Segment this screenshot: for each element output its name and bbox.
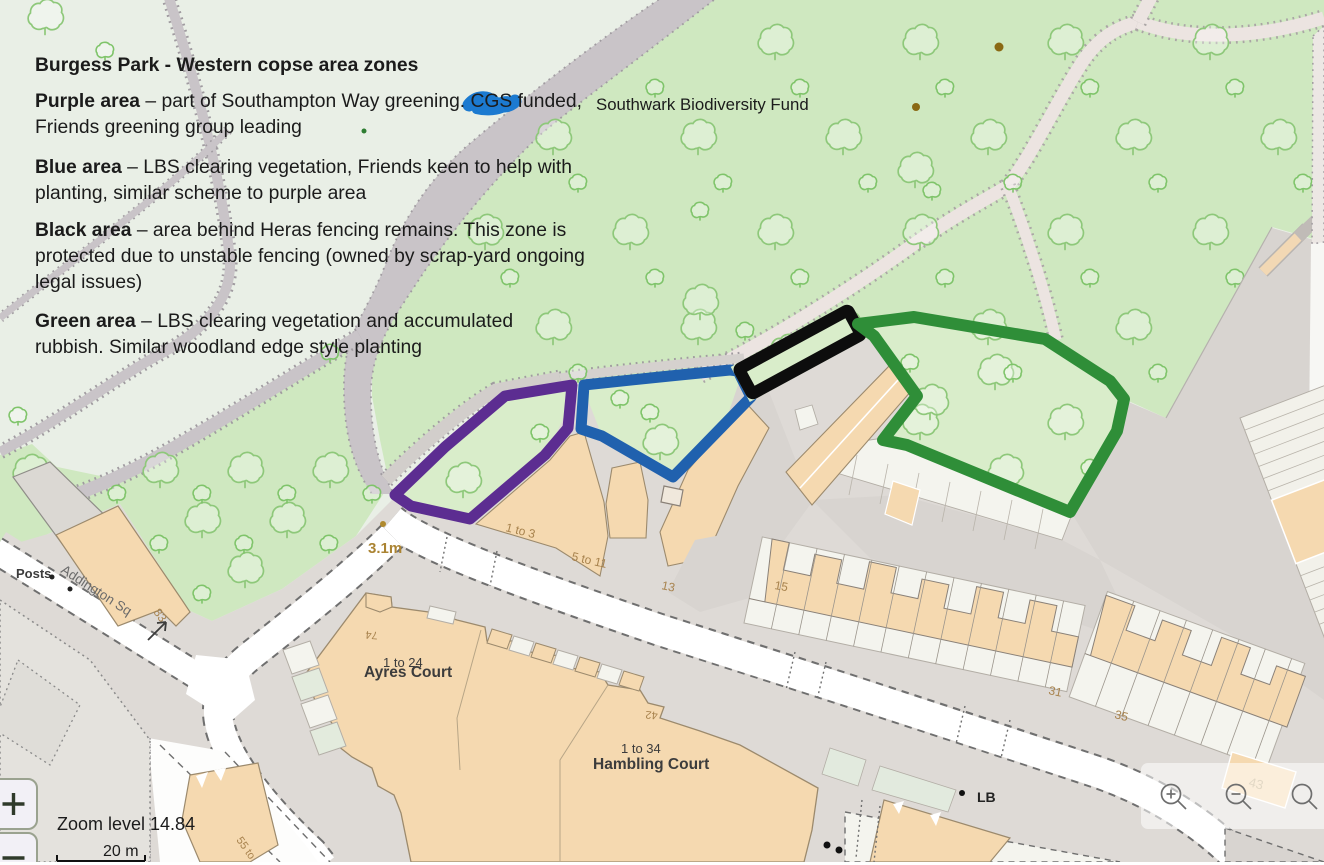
svg-text:74: 74	[365, 628, 378, 641]
svg-text:Ayres Court: Ayres Court	[364, 664, 452, 681]
svg-text:Posts: Posts	[16, 566, 51, 581]
svg-text:LB: LB	[977, 789, 996, 805]
svg-text:42: 42	[645, 708, 658, 721]
svg-text:Hambling Court: Hambling Court	[593, 756, 709, 773]
svg-text:15: 15	[773, 578, 789, 594]
svg-text:1 to 34: 1 to 34	[621, 741, 661, 756]
svg-text:3.1m: 3.1m	[368, 540, 402, 557]
